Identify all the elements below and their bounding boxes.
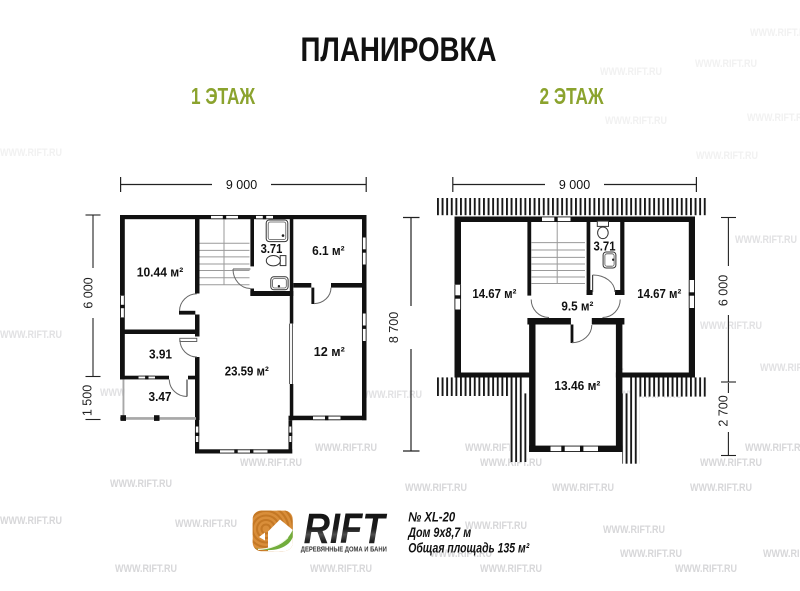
svg-text:2 ЭТАЖ: 2 ЭТАЖ (540, 83, 604, 109)
svg-text:WWW.RIFT.RU: WWW.RIFT.RU (620, 548, 682, 560)
svg-text:1 ЭТАЖ: 1 ЭТАЖ (191, 83, 255, 109)
svg-text:9 000: 9 000 (226, 178, 257, 192)
svg-text:10.44 м²: 10.44 м² (137, 265, 184, 280)
svg-text:WWW.RIFT.RU: WWW.RIFT.RU (763, 548, 800, 560)
svg-text:Дом 9х8,7 м: Дом 9х8,7 м (407, 525, 471, 540)
svg-text:WWW.RIFT.RU: WWW.RIFT.RU (603, 524, 665, 536)
svg-text:WWW.RIFT.RU: WWW.RIFT.RU (745, 442, 800, 454)
svg-text:WWW.RIFT.RU: WWW.RIFT.RU (240, 457, 302, 469)
svg-text:WWW.RIFT.RU: WWW.RIFT.RU (0, 147, 62, 159)
svg-text:WWW.RIFT.RU: WWW.RIFT.RU (747, 112, 800, 124)
svg-text:WWW.RIFT.RU: WWW.RIFT.RU (0, 329, 62, 341)
svg-text:23.59 м²: 23.59 м² (225, 363, 270, 378)
svg-text:13.46 м²: 13.46 м² (554, 378, 601, 393)
svg-text:№ XL-20: № XL-20 (408, 510, 455, 525)
svg-text:9 000: 9 000 (559, 178, 590, 192)
svg-text:2 700: 2 700 (717, 395, 731, 426)
svg-text:WWW.RIFT.RU: WWW.RIFT.RU (605, 115, 667, 127)
svg-text:1 500: 1 500 (81, 385, 95, 416)
svg-text:12 м²: 12 м² (314, 344, 346, 359)
svg-text:3.47: 3.47 (149, 389, 172, 404)
svg-text:3.71: 3.71 (594, 238, 616, 253)
svg-text:WWW.RIFT.RU: WWW.RIFT.RU (750, 27, 800, 39)
svg-text:WWW.RIFT.RU: WWW.RIFT.RU (360, 389, 422, 401)
svg-text:WWW.RIFT.RU: WWW.RIFT.RU (690, 482, 752, 494)
svg-text:WWW.RIFT.RU: WWW.RIFT.RU (115, 563, 177, 575)
svg-text:WWW.RIFT.RU: WWW.RIFT.RU (310, 563, 372, 575)
svg-text:WWW.RIFT.RU: WWW.RIFT.RU (465, 520, 527, 532)
svg-text:3.71: 3.71 (261, 241, 283, 256)
svg-text:WWW.RIFT.RU: WWW.RIFT.RU (735, 234, 797, 246)
svg-text:WWW.RIFT.RU: WWW.RIFT.RU (675, 563, 737, 575)
svg-text:ДЕРЕВЯННЫЕ ДОМА И БАНИ: ДЕРЕВЯННЫЕ ДОМА И БАНИ (301, 544, 387, 553)
svg-text:WWW.RIFT.RU: WWW.RIFT.RU (480, 563, 542, 575)
svg-text:WWW.RIFT.RU: WWW.RIFT.RU (110, 478, 172, 490)
svg-text:Общая площадь 135 м²: Общая площадь 135 м² (408, 541, 529, 556)
svg-text:WWW.RIFT.RU: WWW.RIFT.RU (700, 457, 762, 469)
svg-text:WWW.RIFT.RU: WWW.RIFT.RU (405, 482, 467, 494)
svg-text:14.67 м²: 14.67 м² (472, 286, 517, 301)
svg-text:WWW.RIFT.RU: WWW.RIFT.RU (695, 58, 757, 70)
svg-text:WWW.RIFT.RU: WWW.RIFT.RU (175, 518, 237, 530)
svg-text:WWW.RIFT.RU: WWW.RIFT.RU (700, 320, 762, 332)
svg-text:ПЛАНИРОВКА: ПЛАНИРОВКА (301, 31, 497, 69)
svg-text:WWW.RIFT.RU: WWW.RIFT.RU (552, 482, 614, 494)
svg-text:WWW.RIFT.RU: WWW.RIFT.RU (600, 66, 662, 78)
svg-text:9.5 м²: 9.5 м² (561, 298, 594, 313)
svg-text:6 000: 6 000 (81, 277, 95, 308)
svg-text:6 000: 6 000 (717, 275, 731, 306)
svg-text:WWW.RIFT.RU: WWW.RIFT.RU (696, 150, 758, 162)
svg-text:WWW.RIFT.RU: WWW.RIFT.RU (0, 515, 62, 527)
svg-text:6.1 м²: 6.1 м² (312, 243, 345, 258)
svg-text:WWW.RIFT.RU: WWW.RIFT.RU (315, 442, 377, 454)
svg-text:3.91: 3.91 (149, 347, 172, 362)
svg-text:WWW.RIFT.RU: WWW.RIFT.RU (760, 362, 800, 374)
svg-text:8 700: 8 700 (387, 312, 401, 343)
svg-text:14.67 м²: 14.67 м² (637, 286, 682, 301)
